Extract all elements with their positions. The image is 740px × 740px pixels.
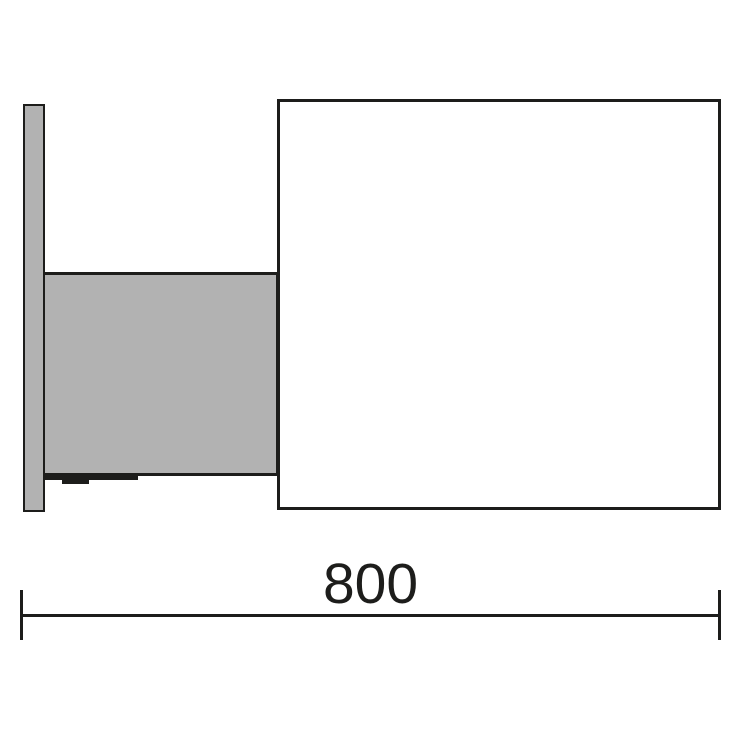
cabinet-body xyxy=(277,99,721,510)
drawer-runner-notch xyxy=(62,476,89,484)
dimension-line xyxy=(21,614,720,617)
drawer-box xyxy=(45,272,279,476)
drawer-runner-profile xyxy=(45,476,138,480)
drawer-front-panel xyxy=(23,104,45,512)
dimension-tick-left xyxy=(20,590,23,640)
dimension-tick-right xyxy=(718,590,721,640)
technical-drawing-canvas: 800 xyxy=(0,0,740,740)
dimension-label: 800 xyxy=(21,556,720,613)
